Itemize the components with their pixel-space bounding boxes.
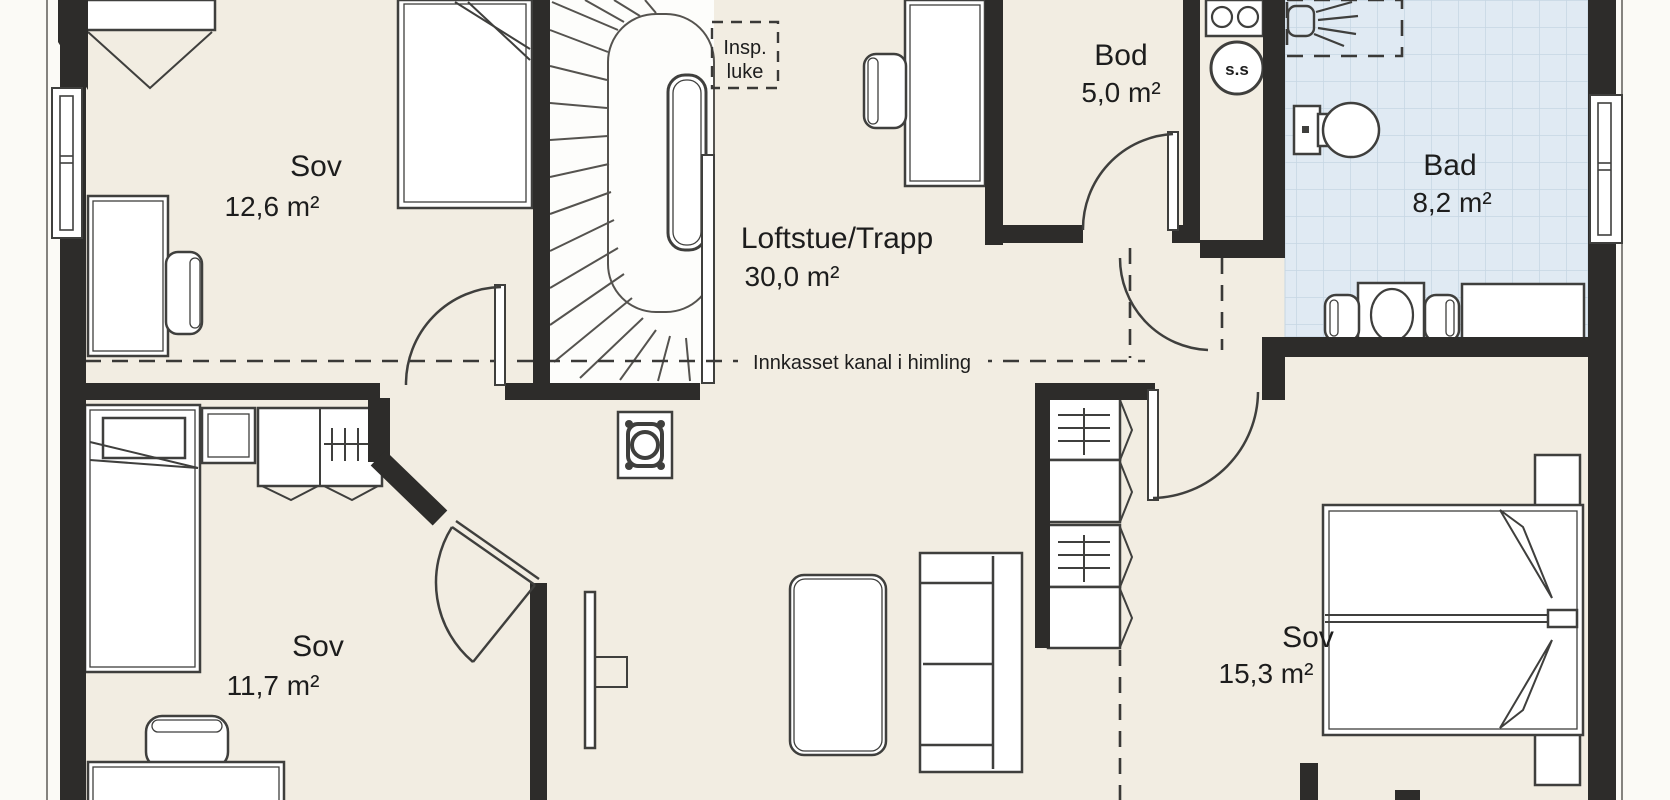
floor-plan: s.s — [0, 0, 1670, 800]
room-label-sov1: Sov — [290, 150, 342, 183]
room-area-loftstue: 30,0 m² — [745, 261, 840, 292]
room-label-loftstue: Loftstue/Trapp — [741, 222, 933, 255]
sofa-icon — [920, 553, 1022, 772]
inspection-hatch-label-2: luke — [727, 61, 764, 83]
desk-icon — [905, 0, 985, 186]
chair-icon — [166, 252, 202, 334]
pillow-icon — [103, 418, 185, 458]
desk-icon — [88, 196, 168, 356]
window-icon — [52, 88, 82, 238]
wardrobe-icon — [1048, 525, 1132, 648]
bed-icon — [398, 0, 532, 208]
wardrobe-icon — [85, 0, 215, 30]
room-label-bad: Bad — [1423, 149, 1476, 182]
chair-icon — [146, 716, 228, 768]
wardrobe-icon — [1048, 398, 1132, 522]
bathroom-wall — [1263, 0, 1285, 258]
nightstand-icon — [1535, 733, 1580, 785]
chair-icon — [864, 54, 906, 128]
duct-note-label: Innkasset kanal i himling — [753, 352, 971, 374]
staircase-icon — [550, 0, 714, 383]
coffee-table-icon — [790, 575, 886, 755]
washing-machine-icon — [1206, 0, 1263, 36]
floor-drain-symbol: s.s — [1211, 42, 1263, 94]
nightstand-icon — [202, 408, 255, 463]
chimney-icon — [618, 412, 672, 478]
double-bed-icon — [1323, 505, 1583, 735]
nightstand-icon — [1535, 455, 1580, 507]
room-area-sov1: 12,6 m² — [225, 191, 320, 222]
room-area-sov2: 11,7 m² — [227, 670, 320, 701]
toilet-icon — [1294, 103, 1379, 157]
room-area-bad: 8,2 m² — [1412, 187, 1491, 218]
window-icon — [1590, 95, 1622, 243]
inspection-hatch-label-1: Insp. — [723, 37, 766, 59]
bod-wall — [985, 0, 1003, 245]
wardrobe-icon — [258, 408, 382, 500]
room-label-sov3: Sov — [1282, 621, 1334, 654]
stair-wall — [533, 0, 550, 400]
room-area-sov3: 15,3 m² — [1219, 658, 1314, 689]
floor-drain-label: s.s — [1225, 60, 1249, 79]
stair-railing — [702, 155, 714, 383]
room-label-bod: Bod — [1094, 39, 1147, 72]
room-area-bod: 5,0 m² — [1081, 77, 1160, 108]
floor-plan-canvas: s.s — [0, 0, 1670, 800]
desk-icon — [88, 762, 284, 800]
duct-note: Innkasset kanal i himling — [738, 351, 988, 374]
room-label-sov2: Sov — [292, 630, 344, 663]
